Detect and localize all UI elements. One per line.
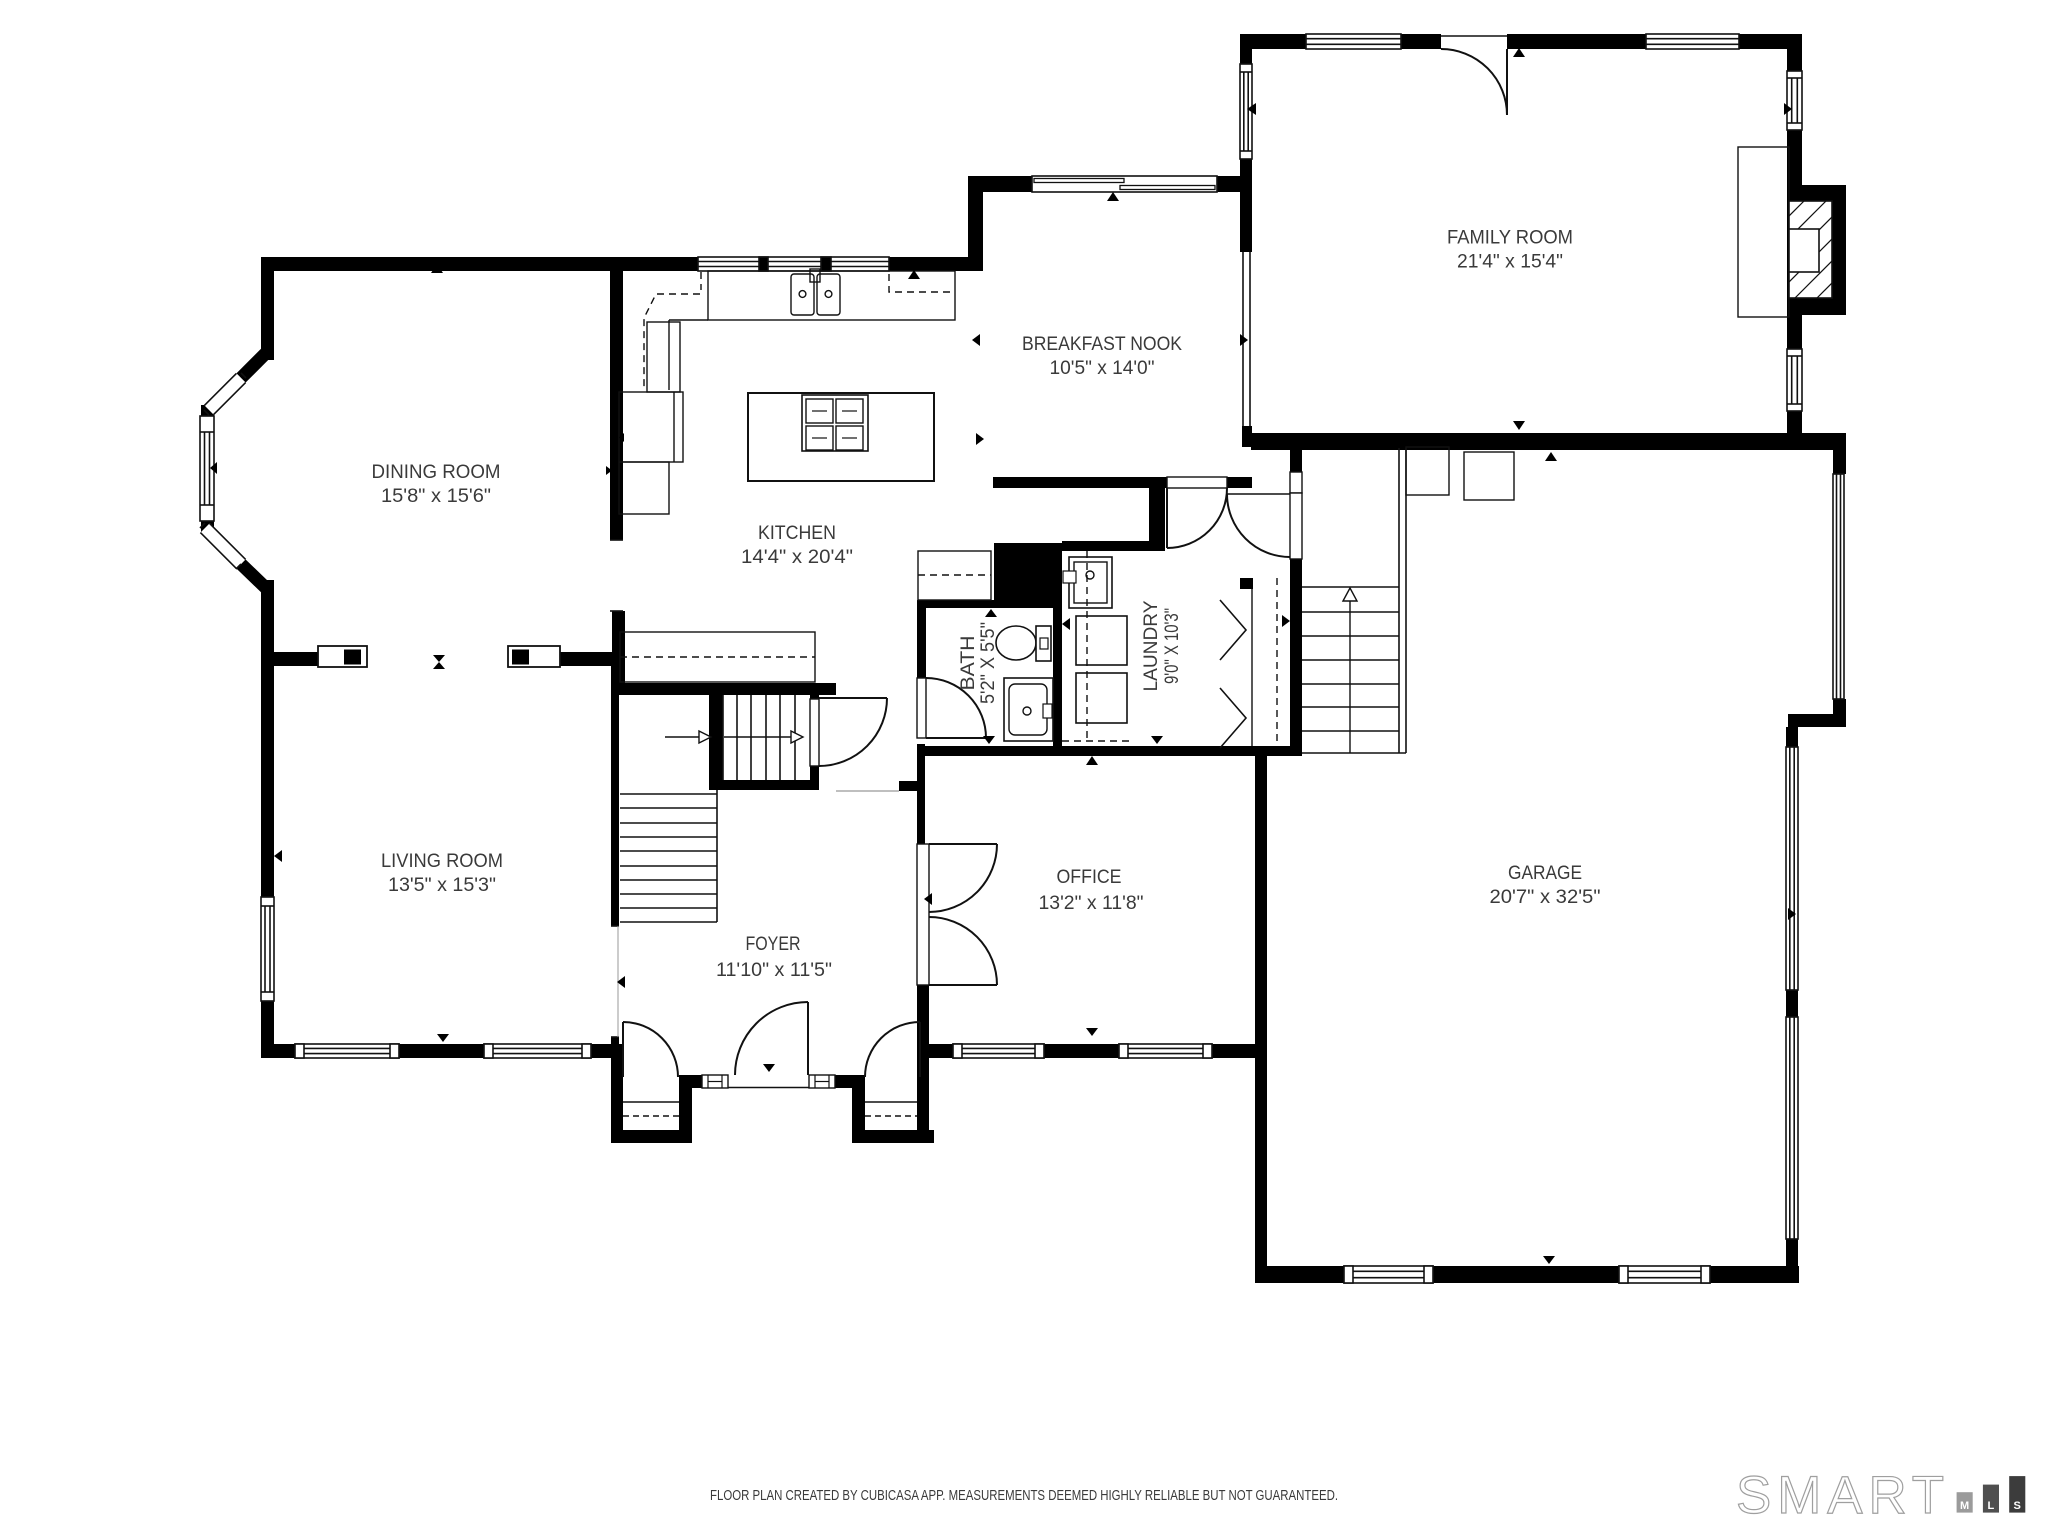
svg-text:KITCHEN: KITCHEN [758, 523, 836, 544]
svg-text:20'7" x 32'5": 20'7" x 32'5" [1490, 887, 1601, 908]
svg-text:11'10" x 11'5": 11'10" x 11'5" [716, 960, 832, 981]
svg-text:LAUNDRY: LAUNDRY [1141, 600, 1162, 691]
svg-text:LIVING ROOM: LIVING ROOM [381, 851, 503, 872]
svg-text:SMART: SMART [1736, 1466, 1950, 1525]
svg-text:M: M [1960, 1500, 1969, 1512]
svg-text:BREAKFAST NOOK: BREAKFAST NOOK [1022, 334, 1182, 355]
svg-text:S: S [2014, 1500, 2021, 1512]
svg-text:L: L [1988, 1500, 1995, 1512]
svg-text:13'5" x 15'3": 13'5" x 15'3" [388, 875, 496, 896]
svg-text:FOYER: FOYER [746, 934, 801, 955]
svg-text:OFFICE: OFFICE [1057, 867, 1122, 888]
svg-text:DINING ROOM: DINING ROOM [372, 462, 501, 483]
svg-text:15'8" x 15'6": 15'8" x 15'6" [381, 486, 491, 507]
svg-text:5'2" X 5'5": 5'2" X 5'5" [978, 622, 999, 704]
svg-text:FLOOR PLAN CREATED BY CUBICASA: FLOOR PLAN CREATED BY CUBICASA APP. MEAS… [710, 1488, 1338, 1504]
svg-text:10'5" x 14'0": 10'5" x 14'0" [1050, 358, 1155, 379]
svg-text:14'4" x 20'4": 14'4" x 20'4" [741, 547, 853, 568]
svg-text:FAMILY ROOM: FAMILY ROOM [1447, 228, 1573, 249]
svg-text:21'4" x 15'4": 21'4" x 15'4" [1457, 252, 1563, 273]
svg-text:13'2" x 11'8": 13'2" x 11'8" [1039, 893, 1144, 914]
svg-text:9'0" X 10'3": 9'0" X 10'3" [1162, 608, 1183, 684]
svg-text:GARAGE: GARAGE [1508, 863, 1582, 884]
svg-text:BATH: BATH [958, 636, 979, 691]
